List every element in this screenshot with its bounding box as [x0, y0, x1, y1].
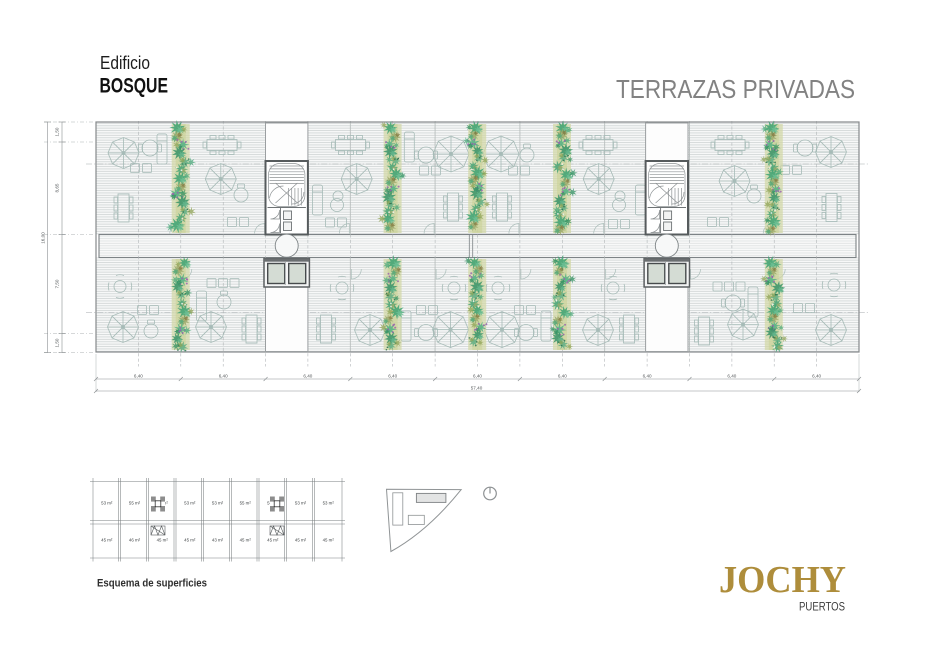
- svg-text:Edificio: Edificio: [100, 53, 150, 73]
- svg-text:6,40: 6,40: [388, 373, 397, 378]
- svg-text:55 m²: 55 m²: [240, 501, 252, 506]
- svg-text:53 m²: 53 m²: [101, 501, 113, 506]
- svg-text:53 m²: 53 m²: [295, 501, 307, 506]
- svg-text:46 m²: 46 m²: [129, 538, 141, 543]
- svg-text:45 m²: 45 m²: [267, 538, 279, 543]
- svg-text:45 m²: 45 m²: [184, 538, 196, 543]
- svg-text:6,40: 6,40: [303, 373, 312, 378]
- svg-text:JOCHY: JOCHY: [719, 559, 846, 601]
- svg-text:53 m²: 53 m²: [212, 501, 224, 506]
- svg-text:16,00: 16,00: [41, 232, 46, 244]
- svg-text:45 m²: 45 m²: [295, 538, 307, 543]
- svg-text:6,40: 6,40: [558, 373, 567, 378]
- svg-text:57,40: 57,40: [471, 386, 483, 391]
- svg-text:7,50: 7,50: [55, 279, 60, 288]
- svg-text:BOSQUE: BOSQUE: [100, 75, 169, 98]
- svg-text:1,50: 1,50: [55, 338, 60, 347]
- svg-text:53 m²: 53 m²: [184, 501, 196, 506]
- svg-text:45 m²: 45 m²: [240, 538, 252, 543]
- svg-text:45 m²: 45 m²: [101, 538, 113, 543]
- svg-text:PUERTOS: PUERTOS: [799, 601, 845, 613]
- svg-text:6,40: 6,40: [812, 373, 821, 378]
- svg-text:6,40: 6,40: [643, 373, 652, 378]
- svg-text:Esquema de superficies: Esquema de superficies: [97, 578, 207, 590]
- svg-text:1,50: 1,50: [55, 127, 60, 136]
- svg-text:6,40: 6,40: [134, 373, 143, 378]
- svg-text:45 m²: 45 m²: [157, 538, 169, 543]
- svg-text:45 m²: 45 m²: [323, 538, 335, 543]
- svg-text:43 m²: 43 m²: [212, 538, 224, 543]
- svg-text:55 m²: 55 m²: [129, 501, 141, 506]
- svg-text:6,40: 6,40: [473, 373, 482, 378]
- svg-text:6,40: 6,40: [727, 373, 736, 378]
- svg-text:6,40: 6,40: [219, 373, 228, 378]
- svg-text:8,65: 8,65: [55, 183, 60, 192]
- svg-text:53 m²: 53 m²: [323, 501, 335, 506]
- svg-text:TERRAZAS PRIVADAS: TERRAZAS PRIVADAS: [616, 74, 855, 104]
